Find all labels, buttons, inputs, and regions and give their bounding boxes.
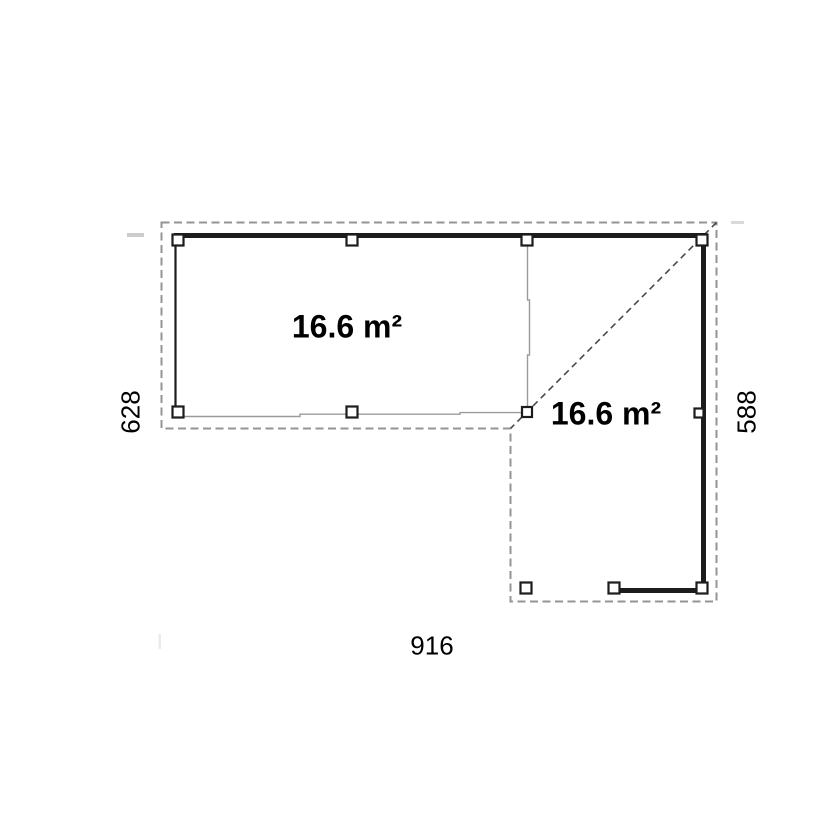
faded-line-artifact bbox=[159, 634, 162, 649]
post-marker bbox=[695, 409, 704, 418]
room-divider-line bbox=[528, 246, 530, 407]
floor-plan-diagram: 16.6 m² 16.6 m² 628 588 916 bbox=[0, 0, 828, 828]
post-marker bbox=[347, 407, 358, 418]
post-marker bbox=[521, 583, 532, 594]
area-label-upper: 16.6 m² bbox=[292, 309, 402, 345]
area-label-right: 16.6 m² bbox=[551, 396, 661, 432]
faded-line-artifact bbox=[127, 233, 144, 237]
floor-plan-canvas: 16.6 m² 16.6 m² 628 588 916 bbox=[0, 0, 828, 828]
dimension-label-left: 628 bbox=[115, 390, 145, 433]
post-marker bbox=[347, 235, 358, 246]
post-marker bbox=[173, 235, 184, 246]
post-marker bbox=[609, 583, 620, 594]
faded-line-artifact bbox=[731, 221, 744, 224]
dimension-label-right: 588 bbox=[731, 390, 761, 433]
post-marker bbox=[522, 407, 532, 417]
post-marker bbox=[697, 235, 708, 246]
labels: 16.6 m² 16.6 m² 628 588 916 bbox=[115, 309, 761, 661]
post-marker bbox=[173, 407, 184, 418]
dimension-label-bottom: 916 bbox=[410, 630, 453, 660]
post-marker bbox=[522, 235, 533, 246]
post-marker bbox=[697, 583, 708, 594]
faded-artifacts bbox=[127, 221, 744, 649]
